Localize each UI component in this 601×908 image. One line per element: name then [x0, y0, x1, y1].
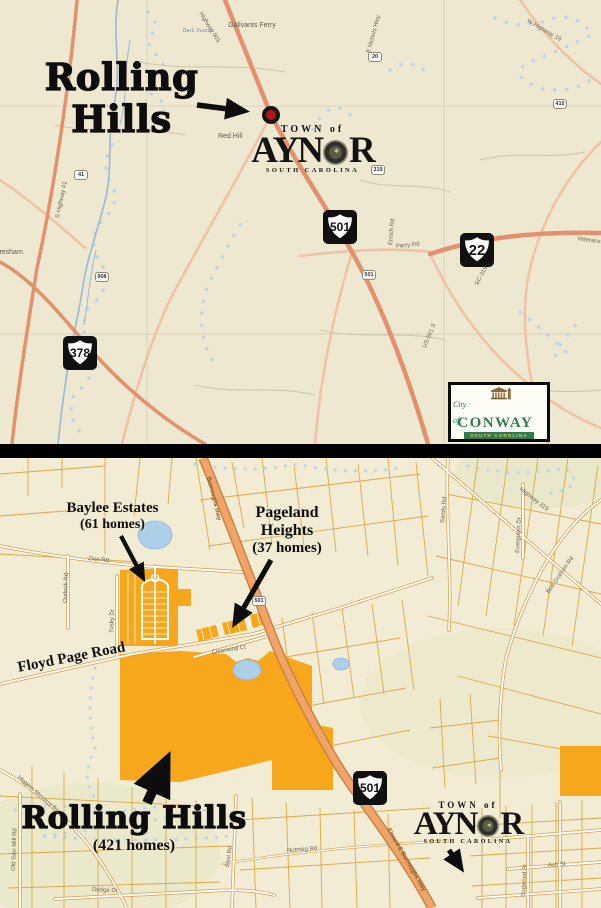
- aynor-name-right: R: [349, 135, 374, 166]
- mini-shield-501-detail: 501: [252, 596, 266, 606]
- aynor-logo-top: TOWN of AYN ✶ R SOUTH CAROLINA: [235, 124, 390, 174]
- callout-line1: Rolling: [34, 58, 209, 97]
- callout-line2: Hills: [34, 100, 209, 139]
- map-divider: [0, 444, 601, 458]
- road-label-dodge-dr: Dodge Dr: [92, 887, 118, 894]
- east-highlight-parcel: [560, 746, 601, 796]
- place-label-galivants-ferry: Galivants Ferry: [228, 22, 276, 29]
- callout-pageland-heights: Pageland Heights (37 homes): [226, 504, 348, 557]
- mini-shield-410: 410: [553, 99, 567, 109]
- pageland-line1: Pageland: [226, 504, 348, 522]
- mini-shield-41: 41: [74, 170, 88, 180]
- road-label-outlook-rd: Outlook Rd: [63, 573, 70, 603]
- aynor-name-left: AYN: [251, 135, 322, 166]
- conway-state-ribbon: SOUTH CAROLINA: [464, 432, 534, 439]
- route-shield-us501-detail-number: 501: [360, 781, 380, 795]
- aynor-name-left-bottom: AYN: [414, 810, 476, 838]
- route-shield-us501-detail: 501: [353, 771, 387, 805]
- conway-name: CONWAY: [457, 415, 533, 431]
- detail-map: Baylee Estates (61 homes) Pageland Heigh…: [0, 458, 601, 908]
- route-shield-22: 22: [460, 233, 494, 267]
- route-shield-378: 378: [63, 336, 97, 370]
- rolling-hills-parcel: [120, 651, 333, 790]
- mini-shield-908: 908: [95, 272, 109, 282]
- aynor-logo-bottom: TOWN of AYN ✶ R SOUTH CAROLINA: [398, 800, 538, 845]
- route-shield-us501: 501: [323, 210, 357, 244]
- aynor-seal-icon-bottom: ✶: [477, 815, 499, 837]
- route-shield-us501-number: 501: [330, 220, 350, 234]
- callout-baylee-estates: Baylee Estates (61 homes): [35, 500, 190, 533]
- site-marker-dot: [262, 106, 280, 124]
- rolling-line1: Rolling Hills: [5, 802, 263, 835]
- aynor-arrow: [449, 850, 461, 868]
- rolling-line2: (421 homes): [5, 837, 263, 855]
- aynor-seal-icon: ✶: [323, 140, 348, 165]
- callout-rolling-hills: Rolling Hills: [34, 58, 209, 139]
- conway-logo: City ofCONWAY SOUTH CAROLINA: [448, 382, 550, 442]
- road-label-ash-st: Ash St: [548, 862, 566, 869]
- callout-rolling-hills-detail: Rolling Hills (421 homes): [5, 802, 263, 855]
- place-label-gresham: Gresham: [0, 249, 23, 256]
- aynor-seal-star-icon: ✶: [333, 148, 339, 157]
- aynor-name-right-bottom: R: [500, 810, 522, 838]
- mini-shield-501: 501: [362, 270, 376, 280]
- mini-shield-20: 20: [368, 52, 382, 62]
- route-shield-378-number: 378: [70, 346, 90, 360]
- pageland-line2: Heights: [226, 522, 348, 540]
- pageland-line3: (37 homes): [226, 540, 348, 557]
- overview-map: Rolling Hills Galivants Ferry Back Swamp…: [0, 0, 601, 444]
- road-label-tusky-dr: Tusky Dr: [109, 609, 116, 633]
- route-shield-22-number: 22: [469, 242, 486, 259]
- baylee-line2: (61 homes): [35, 517, 190, 533]
- baylee-line1: Baylee Estates: [35, 500, 190, 517]
- aynor-seal-star-icon-bottom: ✶: [486, 822, 491, 830]
- two-panel-location-map: Rolling Hills Galivants Ferry Back Swamp…: [0, 0, 601, 908]
